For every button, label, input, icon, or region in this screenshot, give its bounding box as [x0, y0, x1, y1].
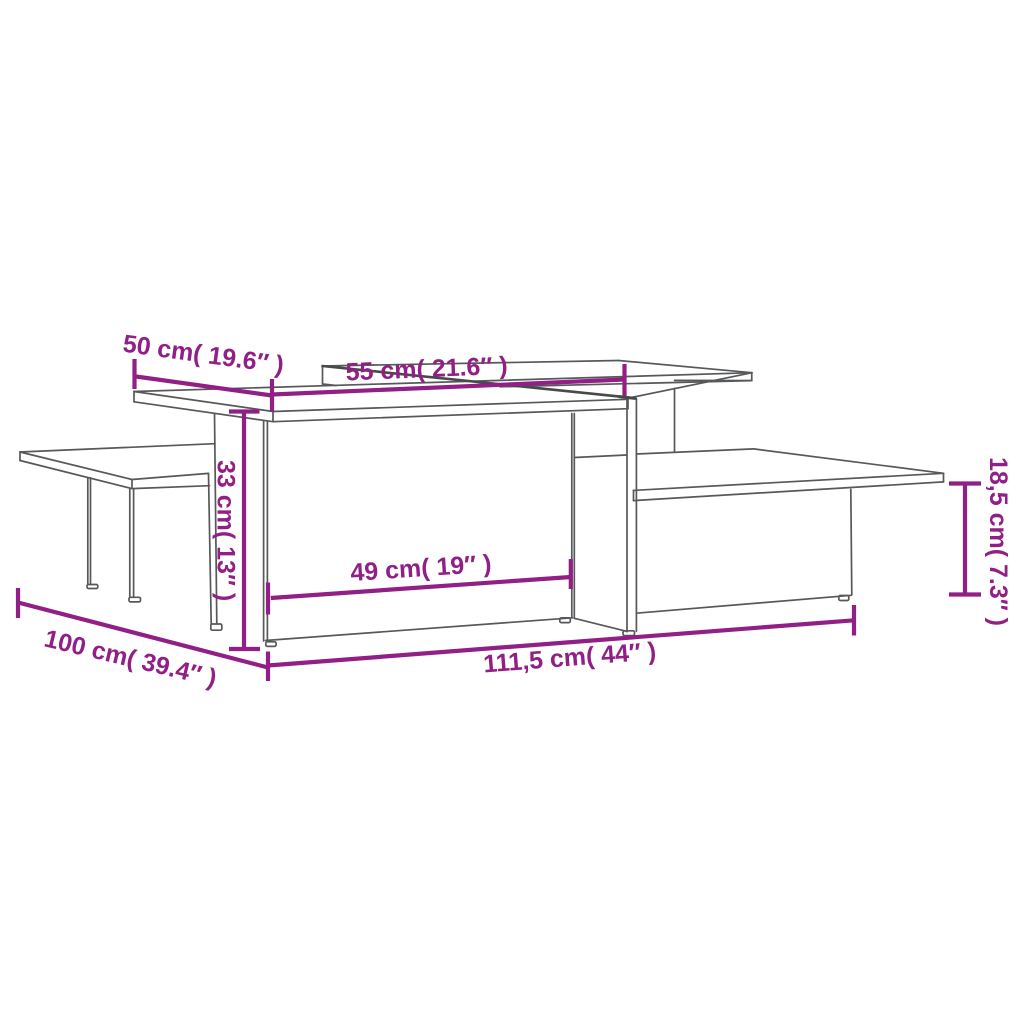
svg-text:33 cm( 13″ ): 33 cm( 13″ )	[212, 460, 240, 601]
svg-text:18,5 cm( 7.3″ ): 18,5 cm( 7.3″ )	[984, 457, 1012, 626]
svg-text:49 cm( 19″ ): 49 cm( 19″ )	[350, 550, 493, 587]
svg-text:100 cm( 39.4″ ): 100 cm( 39.4″ )	[42, 625, 220, 693]
svg-text:50 cm( 19.6″ ): 50 cm( 19.6″ )	[121, 330, 285, 380]
svg-text:111,5 cm( 44″ ): 111,5 cm( 44″ )	[482, 637, 657, 678]
